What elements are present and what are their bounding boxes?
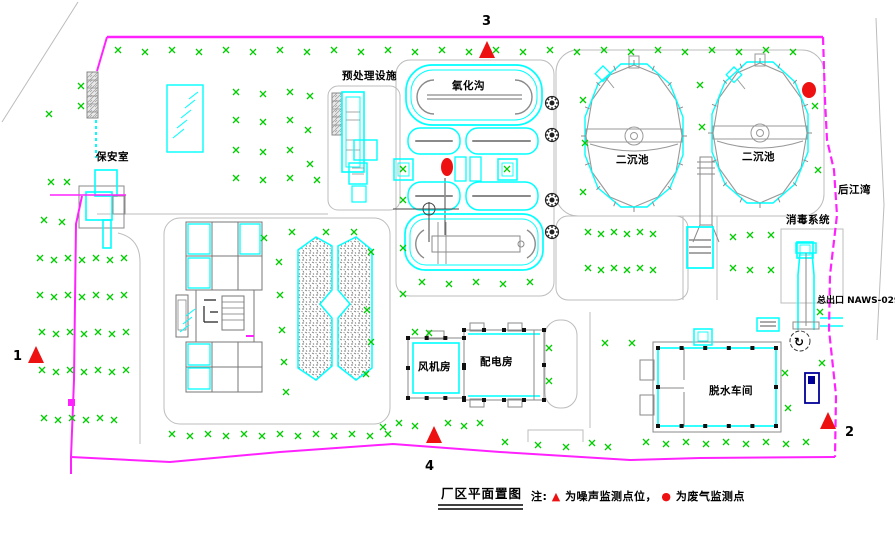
gear-symbol — [546, 129, 559, 142]
vegetation-x-mark — [205, 431, 211, 437]
labels: 保安室 预处理设施 氧化沟 二沉池 二沉池 消毒系统 后江湾 总出口 NAWS-… — [13, 14, 895, 474]
site-boundary — [50, 37, 837, 474]
column-square — [406, 366, 410, 370]
vegetation-x-mark — [547, 47, 553, 53]
gear-hub — [550, 101, 555, 106]
vegetation-x-mark — [287, 117, 293, 123]
vegetation-x-mark — [473, 279, 479, 285]
vegetation-x-mark — [78, 103, 84, 109]
vegetation-x-mark — [187, 433, 193, 439]
vegetation-x-mark — [51, 257, 57, 263]
vegetation-x-mark — [445, 420, 451, 426]
vegetation-x-mark — [314, 177, 320, 183]
boundary-right-dashed — [823, 37, 837, 457]
vegetation-x-mark — [53, 369, 59, 375]
vegetation-x-mark — [37, 292, 43, 298]
vegetation-x-mark — [412, 329, 418, 335]
vegetation-x-mark — [466, 49, 472, 55]
legend-gas-text: 为废气监测点 — [676, 489, 745, 503]
tank-ticks — [581, 58, 812, 212]
column-squares — [406, 328, 778, 428]
vegetation-x-mark — [819, 360, 825, 366]
vegetation-x-mark — [380, 424, 386, 430]
vegetation-marks — [37, 47, 825, 450]
vegetation-x-mark — [629, 340, 635, 346]
vegetation-x-mark — [323, 229, 329, 235]
column-square — [656, 424, 660, 428]
sedimentation-tank-2-structure — [712, 54, 808, 203]
distribution-channel-structure — [687, 157, 719, 268]
gas-legend-icon: ● — [661, 490, 671, 503]
vegetation-x-mark — [53, 331, 59, 337]
column-square — [522, 398, 526, 402]
legend-note-prefix: 注: — [531, 489, 547, 503]
vegetation-x-mark — [196, 49, 202, 55]
vegetation-x-mark — [439, 47, 445, 53]
garden-beds — [298, 237, 372, 380]
legend-noise-text: 为噪声监测点位， — [565, 489, 657, 503]
main-outlet-label: 总出口 NAWS-029 — [817, 294, 895, 306]
column-square — [502, 398, 506, 402]
road-left-strip-edge — [118, 233, 140, 444]
vegetation-x-mark — [250, 49, 256, 55]
vegetation-x-mark — [650, 267, 656, 273]
gear-symbol — [546, 97, 559, 110]
vegetation-x-mark — [287, 147, 293, 153]
vegetation-x-mark — [223, 433, 229, 439]
column-square — [443, 336, 447, 340]
vegetation-x-mark — [385, 431, 391, 437]
vegetation-x-mark — [51, 294, 57, 300]
boundary-bottom — [71, 444, 835, 462]
vegetation-x-mark — [419, 279, 425, 285]
gear-hub — [550, 198, 555, 203]
vegetation-x-mark — [747, 232, 753, 238]
disinfection-system-label: 消毒系统 — [786, 213, 830, 226]
vegetation-x-mark — [169, 47, 175, 53]
vegetation-x-mark — [461, 423, 467, 429]
drawing-title: 厂区平面置图 — [441, 486, 522, 501]
site-plan-canvas: ↻ — [0, 0, 895, 533]
noise-point-1-number: 1 — [13, 349, 22, 364]
vegetation-x-mark — [277, 292, 283, 298]
vegetation-x-mark — [768, 232, 774, 238]
vegetation-x-mark — [580, 97, 586, 103]
vegetation-x-mark — [683, 439, 689, 445]
vegetation-x-mark — [277, 47, 283, 53]
column-square — [542, 328, 546, 332]
river-label: 后江湾 — [838, 183, 871, 196]
vegetation-x-mark — [97, 415, 103, 421]
vegetation-x-mark — [643, 439, 649, 445]
vegetation-x-mark — [331, 47, 337, 53]
vegetation-x-mark — [598, 231, 604, 237]
vegetation-x-mark — [580, 189, 586, 195]
noise-monitoring-point — [479, 41, 495, 58]
vegetation-x-mark — [400, 166, 406, 172]
noise-monitoring-point — [820, 412, 836, 429]
column-square — [425, 396, 429, 400]
rotated-plate-text-marks — [173, 92, 198, 138]
vegetation-x-mark — [259, 433, 265, 439]
vegetation-x-mark — [107, 294, 113, 300]
vegetation-x-mark — [351, 229, 357, 235]
vegetation-x-mark — [287, 89, 293, 95]
garden-bed-left — [298, 237, 332, 380]
column-square — [462, 336, 466, 340]
pretreatment-label: 预处理设施 — [342, 69, 397, 82]
vegetation-x-mark — [283, 389, 289, 395]
road-topleft-diagonal — [2, 2, 78, 122]
vegetation-x-mark — [109, 331, 115, 337]
column-square — [522, 328, 526, 332]
noise-point-3-number: 3 — [482, 14, 491, 29]
boundary-node-mark — [68, 399, 75, 406]
title-underline — [438, 505, 523, 509]
vegetation-x-mark — [307, 161, 313, 167]
vegetation-x-mark — [260, 177, 266, 183]
vegetation-x-mark — [782, 370, 788, 376]
vegetation-x-mark — [121, 255, 127, 261]
vegetation-x-mark — [396, 420, 402, 426]
column-square — [542, 363, 546, 367]
vegetation-x-mark — [815, 167, 821, 173]
column-square — [462, 363, 466, 367]
vegetation-x-mark — [520, 49, 526, 55]
vegetation-x-mark — [763, 439, 769, 445]
vegetation-x-mark — [349, 431, 355, 437]
vegetation-x-mark — [55, 417, 61, 423]
vegetation-x-mark — [624, 267, 630, 273]
vegetation-x-mark — [783, 441, 789, 447]
vegetation-x-mark — [817, 309, 823, 315]
vegetation-x-mark — [95, 367, 101, 373]
vegetation-x-mark — [83, 417, 89, 423]
vegetation-x-mark — [279, 327, 285, 333]
vegetation-x-mark — [233, 117, 239, 123]
vegetation-x-mark — [358, 49, 364, 55]
noise-legend-icon: ▲ — [552, 490, 561, 503]
roads — [2, 2, 884, 444]
vegetation-x-mark — [598, 267, 604, 273]
vegetation-x-mark — [703, 441, 709, 447]
column-square — [774, 346, 778, 350]
vegetation-x-mark — [400, 291, 406, 297]
vegetation-x-mark — [289, 229, 295, 235]
vegetation-x-mark — [93, 292, 99, 298]
security-room-label: 保安室 — [95, 150, 129, 163]
column-square — [727, 424, 731, 428]
site-name-plate — [167, 85, 203, 152]
vegetation-x-mark — [93, 255, 99, 261]
column-square — [656, 346, 660, 350]
vegetation-x-mark — [563, 444, 569, 450]
vegetation-x-mark — [169, 431, 175, 437]
road-bottom-rect — [528, 430, 583, 442]
vegetation-x-mark — [697, 82, 703, 88]
vegetation-x-mark — [260, 91, 266, 97]
vegetation-x-mark — [585, 229, 591, 235]
vegetation-x-mark — [605, 444, 611, 450]
dewatering-workshop-label: 脱水车间 — [709, 384, 753, 397]
vegetation-x-mark — [650, 231, 656, 237]
vegetation-x-mark — [295, 433, 301, 439]
column-square — [774, 424, 778, 428]
vegetation-x-mark — [493, 47, 499, 53]
vegetation-x-mark — [111, 417, 117, 423]
vegetation-x-mark — [385, 47, 391, 53]
site-plan-drawing: ↻ — [0, 0, 895, 533]
vegetation-x-mark — [500, 281, 506, 287]
vegetation-x-mark — [241, 431, 247, 437]
vegetation-x-mark — [260, 149, 266, 155]
column-square — [462, 328, 466, 332]
gas-monitoring-point — [802, 82, 816, 98]
vegetation-x-mark — [276, 259, 282, 265]
vegetation-x-mark — [611, 229, 617, 235]
oxidation-ditch-structure — [393, 65, 543, 270]
vegetation-x-mark — [37, 255, 43, 261]
gear-hub — [550, 133, 555, 138]
vegetation-x-mark — [281, 359, 287, 365]
road-far-right — [876, 18, 884, 340]
oxidation-ditch-label: 氧化沟 — [451, 79, 485, 92]
vegetation-x-mark — [64, 179, 70, 185]
sedimentation-tank-2-label: 二沉池 — [742, 150, 775, 163]
vegetation-x-mark — [747, 267, 753, 273]
legend: 厂区平面置图 注: ▲ 为噪声监测点位， ● 为废气监测点 — [438, 486, 745, 509]
vegetation-x-mark — [121, 292, 127, 298]
vegetation-x-mark — [527, 279, 533, 285]
vegetation-x-mark — [446, 281, 452, 287]
column-square — [727, 346, 731, 350]
column-square — [425, 336, 429, 340]
storage-tank-structure — [805, 373, 819, 403]
vegetation-x-mark — [730, 234, 736, 240]
legend-note: 注: ▲ 为噪声监测点位， ● 为废气监测点 — [531, 489, 745, 503]
vegetation-x-mark — [637, 265, 643, 271]
column-square — [680, 424, 684, 428]
vegetation-x-mark — [41, 415, 47, 421]
noise-point-2-number: 2 — [845, 425, 854, 440]
column-square — [750, 424, 754, 428]
column-square — [680, 346, 684, 350]
vegetation-x-mark — [95, 329, 101, 335]
vegetation-x-mark — [624, 231, 630, 237]
vegetation-x-mark — [46, 111, 52, 117]
vegetation-x-mark — [109, 369, 115, 375]
vegetation-x-mark — [233, 89, 239, 95]
column-square — [406, 396, 410, 400]
vegetation-x-mark — [78, 83, 84, 89]
vegetation-x-mark — [611, 265, 617, 271]
vegetation-x-mark — [67, 329, 73, 335]
vegetation-x-mark — [39, 329, 45, 335]
vegetation-x-mark — [730, 265, 736, 271]
vegetation-x-mark — [699, 124, 705, 130]
vegetation-x-mark — [123, 329, 129, 335]
vegetation-x-mark — [79, 257, 85, 263]
column-square — [703, 424, 707, 428]
vegetation-x-mark — [233, 147, 239, 153]
gear-symbols — [546, 97, 559, 239]
vegetation-x-mark — [81, 369, 87, 375]
noise-point-4-number: 4 — [425, 459, 434, 474]
vegetation-x-mark — [123, 367, 129, 373]
column-square — [703, 346, 707, 350]
vegetation-x-mark — [81, 331, 87, 337]
garden-bed-right — [338, 237, 372, 380]
vegetation-x-mark — [307, 93, 313, 99]
vegetation-x-mark — [223, 47, 229, 53]
column-square — [542, 398, 546, 402]
vegetation-x-mark — [743, 441, 749, 447]
vegetation-x-mark — [585, 265, 591, 271]
vegetation-x-mark — [277, 431, 283, 437]
column-square — [406, 336, 410, 340]
vegetation-x-mark — [67, 367, 73, 373]
gas-monitoring-point — [441, 158, 453, 176]
vegetation-x-mark — [400, 197, 406, 203]
vegetation-x-mark — [142, 49, 148, 55]
vegetation-x-mark — [535, 442, 541, 448]
column-square — [443, 396, 447, 400]
vegetation-x-mark — [305, 127, 311, 133]
vegetation-x-mark — [589, 440, 595, 446]
vegetation-x-mark — [412, 423, 418, 429]
vegetation-x-mark — [477, 420, 483, 426]
noise-monitoring-point — [426, 426, 442, 443]
gate-hatch-column — [87, 72, 98, 118]
office-building-structure — [176, 222, 262, 392]
sedimentation-tank-1-structure — [585, 56, 683, 207]
column-square — [656, 385, 660, 389]
pump-symbol: ↻ — [790, 331, 810, 351]
vegetation-x-mark — [260, 119, 266, 125]
dewatering-workshop-structure — [640, 329, 819, 432]
blower-room-label: 风机房 — [418, 360, 451, 373]
vegetation-x-mark — [287, 175, 293, 181]
vegetation-x-mark — [546, 345, 552, 351]
gear-symbol — [546, 194, 559, 207]
column-square — [482, 328, 486, 332]
vegetation-x-mark — [812, 103, 818, 109]
vegetation-x-mark — [637, 229, 643, 235]
vegetation-x-mark — [723, 439, 729, 445]
column-square — [502, 328, 506, 332]
sedimentation-tank-1-label: 二沉池 — [616, 153, 649, 166]
boundary-topleft-diagonal — [97, 37, 107, 71]
vegetation-x-mark — [412, 49, 418, 55]
vegetation-x-mark — [48, 179, 54, 185]
road-between-tanks — [556, 216, 688, 300]
vegetation-x-mark — [663, 441, 669, 447]
column-square — [462, 398, 466, 402]
vegetation-x-mark — [65, 255, 71, 261]
vegetation-x-mark — [107, 257, 113, 263]
column-square — [750, 346, 754, 350]
vegetation-x-mark — [367, 433, 373, 439]
noise-monitoring-point — [28, 346, 44, 363]
vegetation-x-mark — [59, 219, 65, 225]
column-square — [482, 398, 486, 402]
gear-symbol — [546, 226, 559, 239]
vegetation-x-mark — [79, 294, 85, 300]
vegetation-x-mark — [502, 439, 508, 445]
vegetation-x-mark — [803, 439, 809, 445]
vegetation-x-mark — [331, 433, 337, 439]
vegetation-x-mark — [785, 405, 791, 411]
vegetation-x-mark — [65, 292, 71, 298]
vegetation-x-mark — [115, 47, 121, 53]
vegetation-x-mark — [602, 340, 608, 346]
power-room-label: 配电房 — [480, 355, 513, 368]
vegetation-x-mark — [39, 367, 45, 373]
vegetation-x-mark — [313, 431, 319, 437]
vegetation-x-mark — [768, 267, 774, 273]
vegetation-x-mark — [504, 166, 510, 172]
vegetation-x-mark — [41, 217, 47, 223]
pretreatment-structure — [332, 92, 377, 202]
vegetation-x-mark — [304, 49, 310, 55]
vegetation-x-mark — [546, 378, 552, 384]
column-square — [774, 385, 778, 389]
pump-icon: ↻ — [794, 335, 804, 349]
vegetation-x-mark — [233, 175, 239, 181]
gear-hub — [550, 230, 555, 235]
